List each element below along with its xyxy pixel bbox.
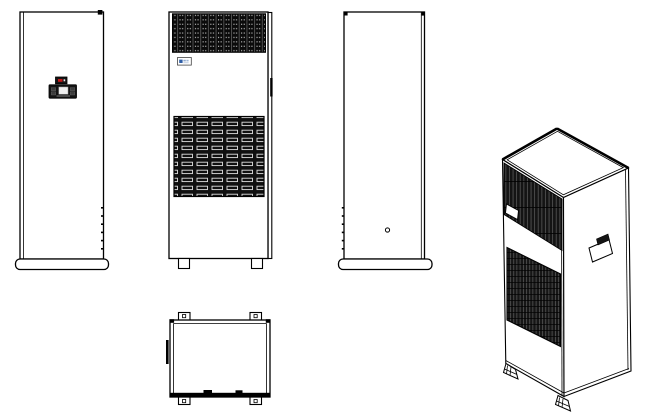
- panel-button: [51, 92, 55, 95]
- view-front-grilles: [169, 12, 273, 269]
- panel-button: [70, 92, 74, 95]
- view-front-controller: [16, 10, 109, 270]
- brand-logo-badge: [178, 58, 192, 66]
- red-indicator: [58, 79, 63, 82]
- corner-latch-mark: [98, 10, 103, 15]
- cabinet-top-outline: [170, 320, 270, 397]
- corner-mark: [170, 319, 175, 323]
- vent-hole: [385, 228, 389, 232]
- edge-notch: [236, 390, 243, 393]
- edge-notch: [204, 390, 213, 393]
- louvered-grille: [174, 117, 264, 197]
- top-perforated-grille: [173, 14, 266, 53]
- display-dot: [64, 79, 66, 81]
- lcd-screen: [59, 87, 68, 94]
- panel-caption-line: [57, 95, 71, 96]
- corner-latch-mark: [344, 12, 348, 16]
- base-plinth: [339, 259, 433, 270]
- view-isometric: [503, 129, 632, 412]
- cabinet-body: [344, 12, 425, 259]
- corner-latch-mark: [422, 12, 425, 16]
- side-handle-bar: [166, 340, 169, 364]
- technical-drawing-canvas: [0, 0, 653, 419]
- leveling-foot: [556, 396, 571, 412]
- cabinet-body: [20, 12, 104, 259]
- view-side-plain: [339, 12, 433, 270]
- side-handle: [270, 78, 272, 97]
- corner-mark: [266, 319, 271, 323]
- foot-left: [179, 259, 190, 269]
- foot-right: [252, 259, 263, 269]
- panel-button: [51, 88, 55, 91]
- base-plinth: [16, 259, 109, 270]
- panel-button: [70, 88, 74, 91]
- front-edge-bar: [170, 393, 270, 397]
- view-top: [166, 313, 270, 405]
- right-face: [564, 168, 632, 397]
